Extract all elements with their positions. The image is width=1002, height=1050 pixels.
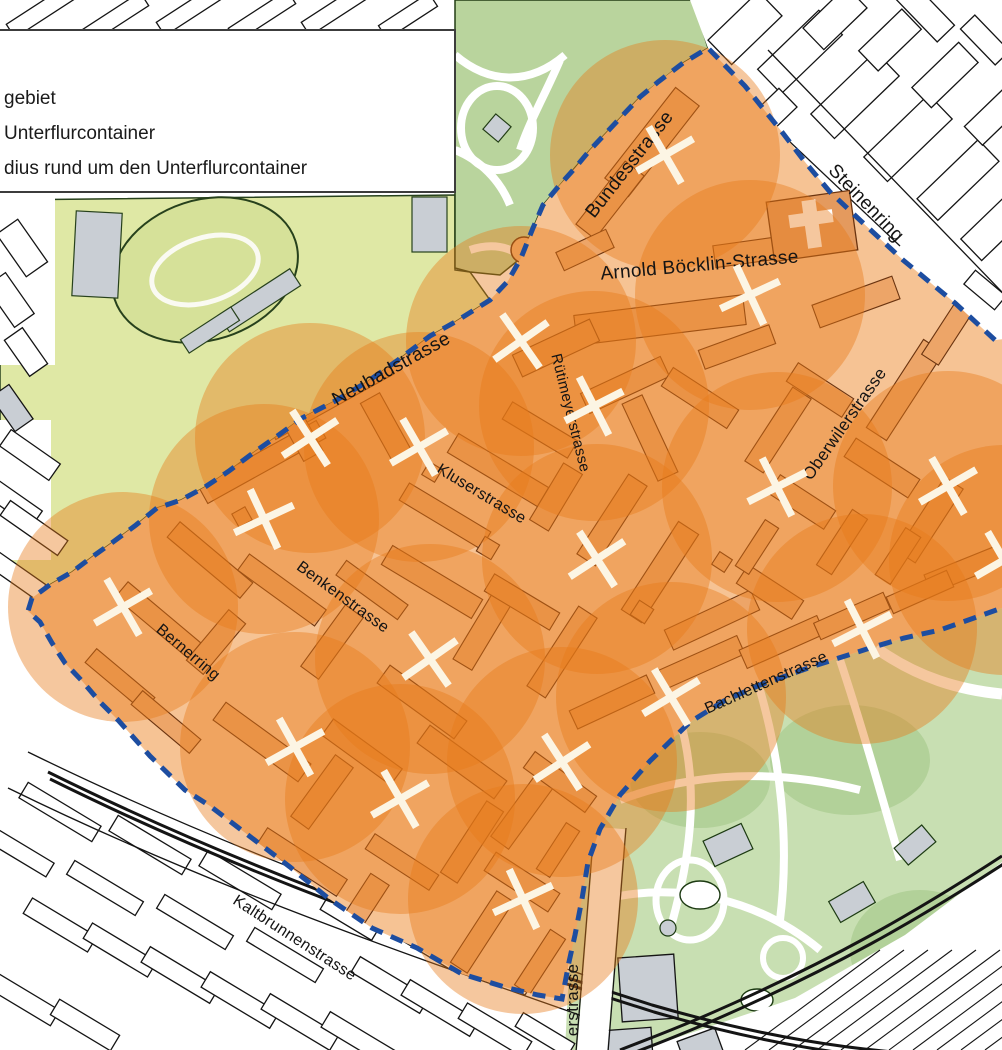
outside-building	[917, 140, 999, 221]
outside-building	[811, 52, 899, 139]
outside-building	[83, 923, 157, 977]
outside-building	[0, 827, 54, 877]
outside-building	[23, 898, 97, 952]
field-building	[412, 197, 447, 252]
map-stage: BundesstrasseArnold Böcklin-StrasseStein…	[0, 0, 1002, 1050]
legend-item-pilot-area: gebiet	[4, 81, 454, 116]
legend-item-container: Unterflurcontainer	[4, 116, 454, 151]
outside-building	[67, 861, 144, 916]
outside-building	[618, 954, 678, 1022]
outside-building	[964, 85, 1002, 145]
outside-building	[912, 42, 978, 107]
pond-small	[660, 920, 676, 936]
outside-building	[0, 974, 60, 1025]
outside-building	[961, 183, 1002, 260]
street-label: erstrasse	[563, 964, 582, 1037]
outside-building	[964, 270, 1002, 310]
outside-building	[141, 947, 219, 1004]
outside-building	[50, 999, 119, 1050]
outside-building	[864, 95, 952, 182]
field-building	[72, 211, 122, 298]
outside-building	[157, 895, 234, 950]
legend: gebiet Unterflurcontainer dius rund um d…	[0, 29, 456, 193]
legend-item-radius: dius rund um den Unterflurcontainer	[4, 151, 454, 186]
pond	[680, 881, 720, 909]
